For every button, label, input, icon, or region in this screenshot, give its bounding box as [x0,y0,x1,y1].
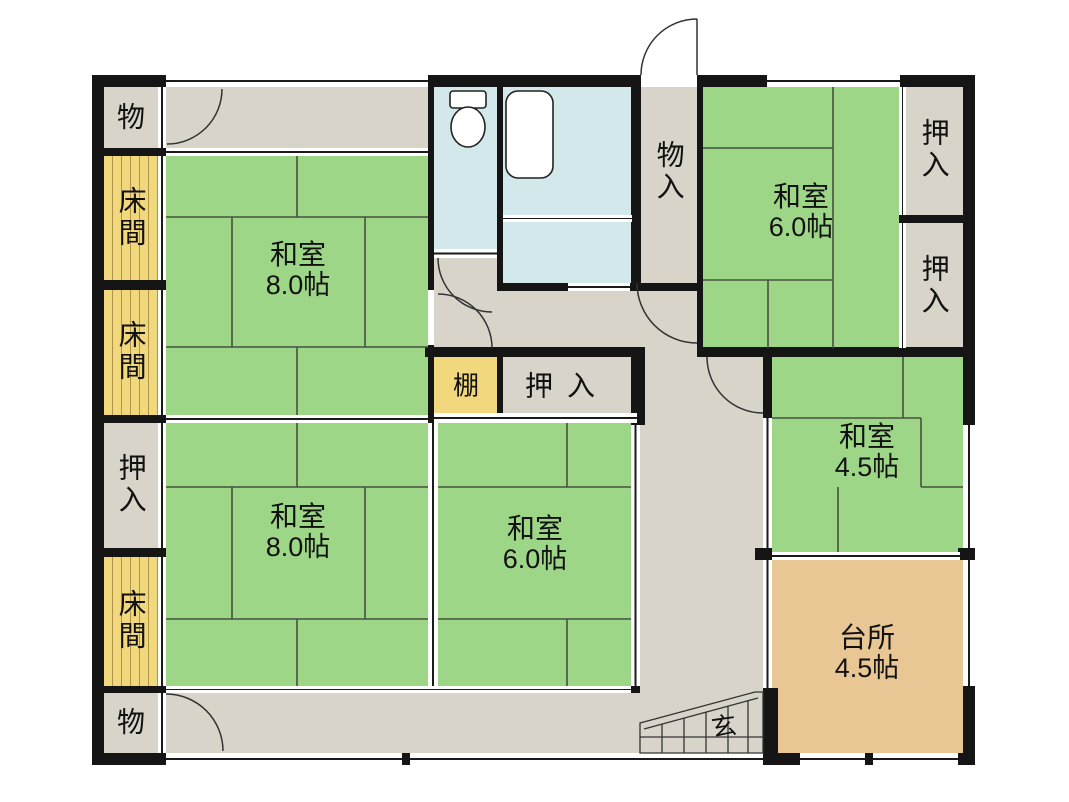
wall [497,357,503,413]
room-size: 6.0帖 [503,545,568,575]
wall [697,347,975,357]
label-storage-center: 物入 [653,140,684,204]
wall [865,753,873,765]
sliding-door [158,87,166,148]
label-washitsu-6-south: 和室 6.0帖 [503,513,568,575]
sliding-door [763,418,772,548]
sliding-door [503,215,632,222]
sliding-door [631,425,640,686]
label-tokonoma-lower: 床間 [115,589,146,653]
back-door-arc [641,19,697,75]
room-name: 和室 [839,421,895,452]
label-entrance-genkan: 玄 [710,711,739,742]
wall [104,548,166,557]
wall [763,348,772,418]
sliding-door [772,552,960,560]
wall [104,280,166,290]
back-door-opening [641,75,697,87]
label-washitsu-8-north: 和室 8.0帖 [266,239,331,301]
label-tokonoma-upper-1: 床間 [115,186,146,250]
window [767,75,900,87]
label-washitsu-45-east: 和室 4.5帖 [835,421,900,483]
sliding-door [158,693,166,753]
room-name: 台所 [839,622,895,653]
wall [631,75,641,291]
label-washitsu-8-south: 和室 8.0帖 [266,501,331,563]
wall [899,215,963,223]
label-storage-bottom-left: 物 [117,706,145,737]
label-storage-top-left: 物 [117,101,145,132]
room-name: 和室 [270,239,326,270]
door-opening [428,290,434,345]
window [800,753,865,765]
window [873,753,958,765]
room-size: 8.0帖 [266,271,331,301]
room-size: 4.5帖 [835,654,900,684]
toilet-floor [434,87,497,249]
tokonoma-front [158,290,166,415]
label-kitchen: 台所 4.5帖 [835,622,900,684]
label-tokonoma-upper-2: 床間 [115,320,146,384]
room-size: 8.0帖 [266,533,331,563]
wall [755,548,772,560]
label-closet-center: 押入 [525,370,609,401]
wall [425,347,645,357]
window [166,75,428,87]
room-name: 和室 [773,181,829,212]
label-closet-right-lower: 押入 [918,254,949,318]
label-washitsu-6-northeast: 和室 6.0帖 [769,181,834,243]
tokonoma-front [158,557,166,686]
wall [697,75,703,357]
window [963,425,975,548]
label-shelf: 棚 [453,371,479,400]
closet-front [899,223,906,348]
sliding-door [166,415,428,423]
closet-front [899,87,906,215]
label-closet-left: 押入 [115,453,146,517]
wall-left [92,75,104,765]
bathroom-floor [503,87,632,283]
wall [104,415,166,423]
room-name: 和室 [507,513,563,544]
label-closet-right-upper: 押入 [918,118,949,182]
wall [104,686,166,693]
room-name: 和室 [270,501,326,532]
sliding-door [428,423,438,686]
sliding-door [568,283,630,291]
wall [763,688,778,765]
wall [104,148,166,156]
wall [402,753,410,765]
entrance-sliding-door [640,753,763,765]
sliding-door [434,413,637,423]
room-size: 6.0帖 [769,213,834,243]
room-size: 4.5帖 [835,453,900,483]
wall [497,75,503,291]
wall [958,548,975,560]
window [963,560,975,686]
closet-front [158,423,166,548]
floor-plan: 物 床間 床間 押入 床間 物 和室 8.0帖 物入 和室 6.0帖 押入 押入… [0,0,1069,802]
sliding-door [166,686,631,693]
tokonoma-front [158,156,166,280]
window [410,753,640,765]
window [166,753,402,765]
sliding-door [434,249,497,258]
sliding-door [166,148,428,156]
sliding-door [763,560,772,688]
wall [631,686,640,693]
